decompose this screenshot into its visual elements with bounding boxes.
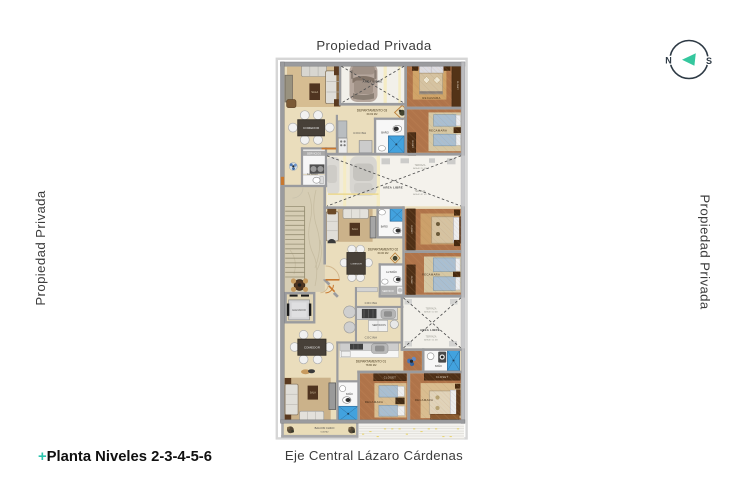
svg-text:TERRAZA: TERRAZA [415,164,426,167]
svg-text:BALCON CHICO: BALCON CHICO [315,426,335,430]
svg-text:TERRAZA: TERRAZA [426,308,437,311]
svg-text:SALA: SALA [310,392,317,395]
svg-text:BAÑO: BAÑO [435,365,442,368]
svg-text:5.06 M2: 5.06 M2 [321,431,330,433]
svg-text:ELEVADOR: ELEVADOR [292,309,306,312]
svg-text:N: N [665,56,672,66]
svg-text:AREA 7.10 M2: AREA 7.10 M2 [424,311,438,314]
svg-text:DEPARTAMENTO 02: DEPARTAMENTO 02 [368,247,399,251]
svg-text:S: S [706,56,712,66]
svg-text:CLOSET: CLOSET [456,81,458,90]
svg-text:69.93 M2: 69.93 M2 [367,112,378,116]
svg-text:DEPARTAMENTO 01: DEPARTAMENTO 01 [356,359,387,363]
svg-text:Propiedad Privada: Propiedad Privada [316,38,432,53]
svg-text:SERVICIOS: SERVICIOS [372,324,386,327]
svg-text:AREA 2.20 M2: AREA 2.20 M2 [413,167,427,170]
svg-text:COMEDOR: COMEDOR [350,264,362,266]
svg-text:COCINA: COCINA [365,336,378,340]
svg-text:SALA: SALA [352,228,359,231]
svg-text:Propiedad Privada: Propiedad Privada [698,194,713,310]
svg-text:60.00 M2: 60.00 M2 [378,251,389,255]
svg-text:COMEDOR: COMEDOR [304,346,321,350]
svg-text:AREA LIBRE: AREA LIBRE [420,328,440,332]
svg-text:1/2 BAÑO: 1/2 BAÑO [307,173,318,176]
svg-text:TERRAZA: TERRAZA [426,336,437,339]
svg-text:Eje Central Lázaro Cárdenas: Eje Central Lázaro Cárdenas [285,448,463,463]
svg-text:TERRAZA: TERRAZA [415,190,426,193]
svg-text:Propiedad Privada: Propiedad Privada [33,190,48,306]
svg-text:+Planta Niveles 2-3-4-5-6: +Planta Niveles 2-3-4-5-6 [38,449,212,465]
svg-text:COCINA: COCINA [353,131,366,135]
svg-text:AREA LIBRE: AREA LIBRE [363,80,383,84]
svg-text:AREA 7.14 M2: AREA 7.14 M2 [424,339,438,342]
svg-text:BAÑO: BAÑO [381,226,388,229]
svg-text:SERVICIOS: SERVICIOS [307,152,321,156]
svg-text:SALA: SALA [311,90,318,94]
svg-text:AREA LIBRE: AREA LIBRE [383,185,403,189]
svg-text:COCINA: COCINA [365,301,378,305]
svg-text:DEPARTAMENTO 03: DEPARTAMENTO 03 [357,108,388,112]
svg-text:COMEDOR: COMEDOR [303,126,320,130]
svg-text:1/2 BAÑO: 1/2 BAÑO [386,271,397,274]
svg-text:SERVICIO: SERVICIO [382,290,394,293]
svg-text:78.80 M2: 78.80 M2 [366,363,377,367]
svg-text:AREA 5.87 M2: AREA 5.87 M2 [413,193,427,196]
svg-text:BAÑO: BAÑO [346,393,353,396]
